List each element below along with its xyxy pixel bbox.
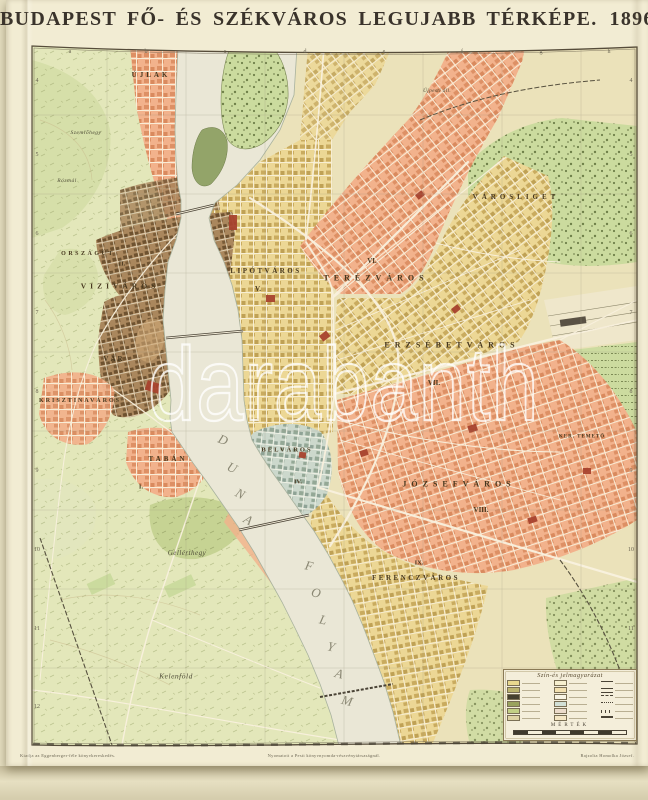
legend-box: Szín-és jelmagyarázat MÉRTÉK bbox=[503, 669, 637, 741]
legend-label-line bbox=[522, 697, 540, 699]
legend-item bbox=[507, 688, 540, 693]
legend-label-line bbox=[569, 704, 587, 706]
legend-column-symbols bbox=[601, 681, 633, 721]
legend-label-line bbox=[615, 690, 633, 692]
legend-label-line bbox=[522, 683, 540, 685]
legend-column-areas bbox=[554, 681, 587, 721]
legend-line-symbol bbox=[601, 688, 613, 693]
legend-item bbox=[601, 702, 633, 707]
imprint-cartographer: Rajzolta Homolka József. bbox=[580, 753, 634, 758]
legend-item bbox=[601, 716, 633, 721]
legend-item bbox=[554, 695, 587, 700]
legend-line-symbol bbox=[601, 681, 613, 685]
legend-item bbox=[554, 709, 587, 714]
legend-label-line bbox=[522, 718, 540, 720]
legend-swatch bbox=[507, 687, 520, 693]
legend-item bbox=[601, 681, 633, 686]
legend-swatch bbox=[554, 708, 567, 714]
legend-item bbox=[601, 688, 633, 693]
legend-label-line bbox=[522, 704, 540, 706]
legend-swatch bbox=[507, 708, 520, 714]
legend-label-line bbox=[522, 690, 540, 692]
legend-columns bbox=[507, 681, 633, 721]
scale-label: MÉRTÉK bbox=[507, 723, 633, 728]
legend-line-symbol bbox=[601, 702, 613, 706]
legend-label-line bbox=[569, 683, 587, 685]
legend-item bbox=[507, 702, 540, 707]
map-title-text: BUDAPEST FŐ- ÉS SZÉKVÁROS LEGUJABB TÉRKÉ… bbox=[0, 8, 598, 30]
legend-swatch bbox=[507, 701, 520, 707]
legend-label-line bbox=[615, 704, 633, 706]
legend-swatch bbox=[554, 687, 567, 693]
legend-item bbox=[601, 709, 633, 714]
legend-item bbox=[554, 702, 587, 707]
legend-label-line bbox=[615, 718, 633, 720]
legend-title: Szín-és jelmagyarázat bbox=[507, 672, 633, 679]
legend-label-line bbox=[569, 697, 587, 699]
legend-item bbox=[507, 709, 540, 714]
legend-label-line bbox=[569, 711, 587, 713]
legend-swatch bbox=[554, 694, 567, 700]
legend-column-fills bbox=[507, 681, 540, 721]
legend-item bbox=[601, 695, 633, 700]
imprint-printer: Nyomatott a Pesti könyvnyomda-részvénytá… bbox=[0, 753, 648, 758]
legend-item bbox=[507, 695, 540, 700]
legend-item bbox=[507, 681, 540, 686]
legend-swatch bbox=[554, 701, 567, 707]
legend-swatch bbox=[554, 680, 567, 686]
legend-label-line bbox=[522, 711, 540, 713]
legend-swatch bbox=[507, 694, 520, 700]
legend-item bbox=[554, 681, 587, 686]
legend-swatch bbox=[554, 715, 567, 721]
photographed-map-sheet: BUDAPEST FŐ- ÉS SZÉKVÁROS LEGUJABB TÉRKÉ… bbox=[0, 0, 648, 800]
legend-line-symbol bbox=[601, 695, 613, 699]
legend-label-line bbox=[569, 690, 587, 692]
map-title: BUDAPEST FŐ- ÉS SZÉKVÁROS LEGUJABB TÉRKÉ… bbox=[0, 8, 648, 31]
legend-label-line bbox=[615, 711, 633, 713]
legend-swatch bbox=[507, 715, 520, 721]
legend-item bbox=[554, 688, 587, 693]
legend-label-line bbox=[615, 683, 633, 685]
legend-item bbox=[554, 716, 587, 721]
legend-swatch bbox=[507, 680, 520, 686]
legend-label-line bbox=[569, 718, 587, 720]
map-title-year: 1896. bbox=[610, 8, 648, 30]
legend-label-line bbox=[615, 697, 633, 699]
legend-line-symbol bbox=[601, 716, 613, 721]
scale-bar bbox=[513, 730, 627, 735]
legend-item bbox=[507, 716, 540, 721]
legend-line-symbol bbox=[601, 710, 613, 713]
